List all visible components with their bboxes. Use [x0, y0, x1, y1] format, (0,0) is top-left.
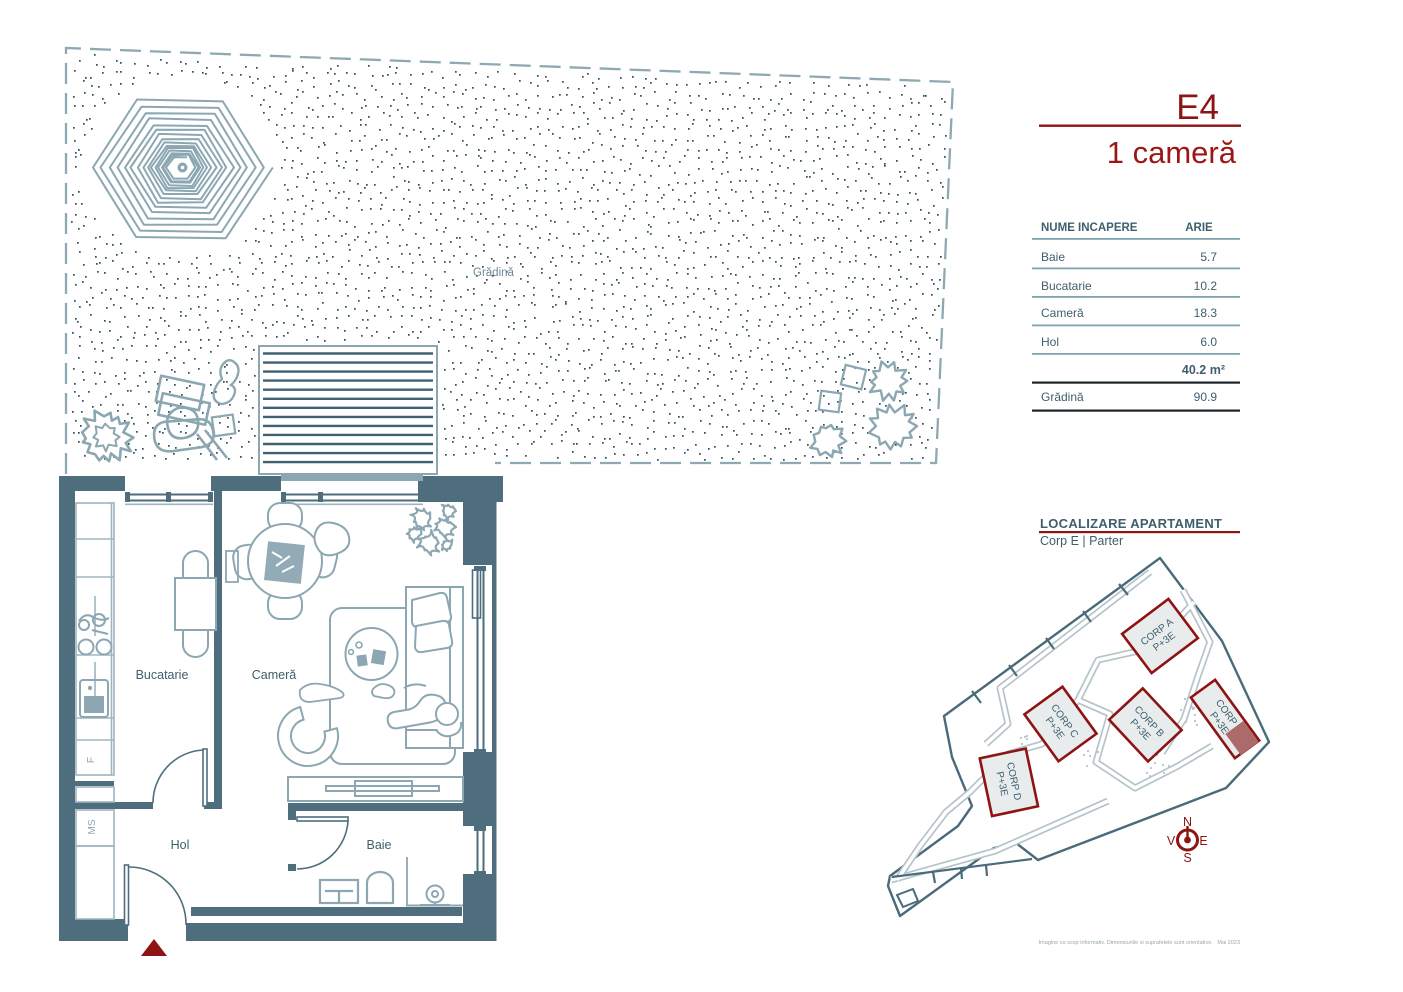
svg-text:E: E — [1199, 834, 1207, 848]
svg-text:S: S — [1183, 851, 1191, 865]
svg-text:F: F — [86, 757, 97, 763]
svg-text:NUME INCAPERE: NUME INCAPERE — [1041, 222, 1138, 234]
svg-text:10.2: 10.2 — [1194, 279, 1218, 293]
svg-text:LOCALIZARE APARTAMENT: LOCALIZARE APARTAMENT — [1040, 516, 1222, 531]
svg-text:Baie: Baie — [366, 838, 391, 852]
svg-text:Hol: Hol — [1041, 335, 1059, 349]
svg-text:Corp E | Parter: Corp E | Parter — [1040, 534, 1123, 548]
svg-text:Cameră: Cameră — [1041, 306, 1084, 320]
svg-text:18.3: 18.3 — [1194, 306, 1218, 320]
svg-text:90.9: 90.9 — [1194, 390, 1218, 404]
svg-text:6.0: 6.0 — [1200, 335, 1217, 349]
svg-text:E4: E4 — [1176, 88, 1219, 127]
svg-text:Hol: Hol — [171, 838, 190, 852]
svg-text:Cameră: Cameră — [252, 668, 297, 682]
svg-text:N: N — [1183, 815, 1192, 829]
svg-text:Baie: Baie — [1041, 250, 1065, 264]
svg-text:ARIE: ARIE — [1185, 222, 1213, 234]
svg-text:Grădină: Grădină — [1041, 390, 1084, 404]
svg-text:Bucatarie: Bucatarie — [136, 668, 189, 682]
svg-text:Bucatarie: Bucatarie — [1041, 279, 1092, 293]
svg-text:1 cameră: 1 cameră — [1107, 135, 1237, 170]
svg-text:5.7: 5.7 — [1200, 250, 1217, 264]
svg-text:40.2 m²: 40.2 m² — [1182, 363, 1225, 377]
svg-text:MS: MS — [87, 819, 98, 834]
svg-text:V: V — [1167, 834, 1176, 848]
svg-text:Grădină: Grădină — [473, 267, 515, 279]
svg-text:Imagine cu scop informativ. Di: Imagine cu scop informativ. Dimensiunile… — [1039, 940, 1240, 946]
